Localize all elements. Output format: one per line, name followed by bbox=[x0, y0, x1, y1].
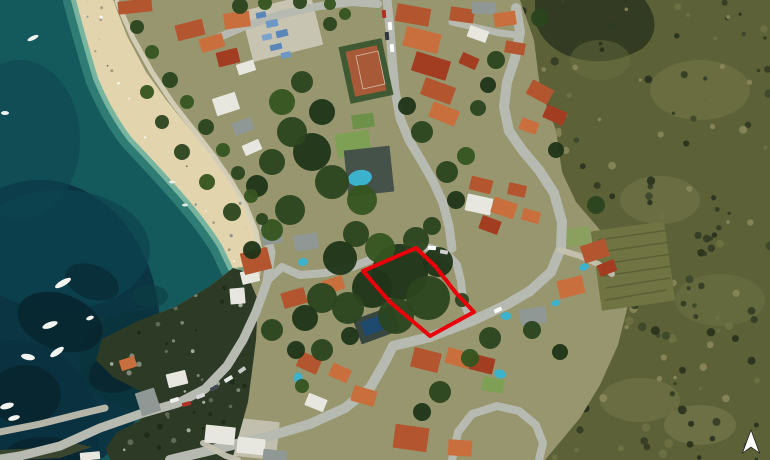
aerial-photo-viewport[interactable] bbox=[0, 0, 770, 460]
satellite-map[interactable] bbox=[0, 0, 770, 460]
terrain-and-town-layers bbox=[0, 0, 770, 460]
